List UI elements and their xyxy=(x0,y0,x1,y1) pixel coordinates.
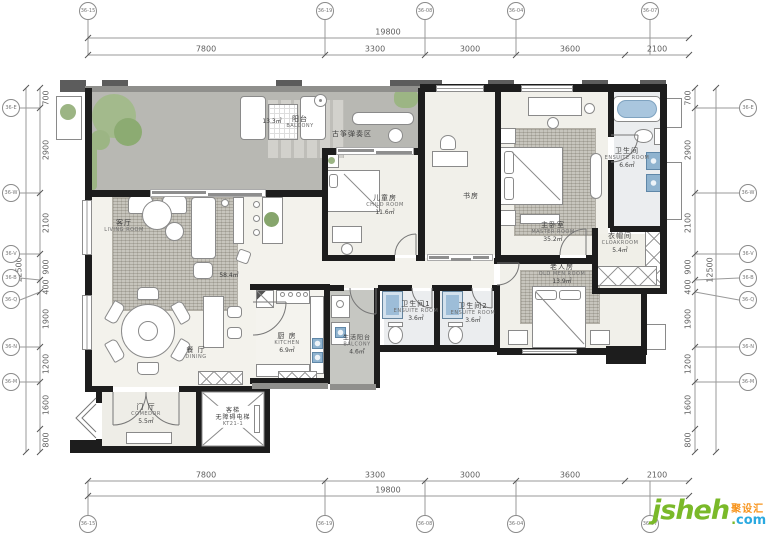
compass-dot xyxy=(319,99,322,102)
fridge xyxy=(256,290,274,308)
kitchen-sink xyxy=(312,338,323,349)
label-dining: 餐 厅DINING xyxy=(185,346,206,360)
wall-child-bottom-a xyxy=(322,255,395,261)
dim-top-seg: 2100 xyxy=(647,45,667,54)
dim-right-seg: 1900 xyxy=(684,309,693,329)
window-top-study xyxy=(436,85,484,92)
toilet xyxy=(634,129,653,143)
dim-left-seg: 400 xyxy=(42,279,51,294)
dim-bottom-seg: 3600 xyxy=(560,471,580,480)
plant-icon xyxy=(114,118,142,146)
label-child: 儿童房CHILD ROOM11.6㎡ xyxy=(366,194,404,216)
dim-bottom-total: 19800 xyxy=(375,486,400,495)
ac-platform xyxy=(646,324,666,350)
guzheng-stool xyxy=(388,128,403,143)
wall-service-right xyxy=(374,288,380,388)
grid-bubble: 36-19 xyxy=(316,2,334,20)
burner xyxy=(303,292,308,297)
dim-left-seg: 700 xyxy=(42,90,51,105)
sliding-door-leaf xyxy=(473,256,489,259)
dim-right-seg: 400 xyxy=(684,279,693,294)
wall-master-bath-b xyxy=(608,160,614,228)
burner xyxy=(280,292,285,297)
label-elevator: 客梯无障碍电梯KT21-1 xyxy=(213,406,252,428)
sliding-door-leaf xyxy=(208,193,262,196)
wall-study-left xyxy=(418,88,425,258)
dim-bottom-seg: 3000 xyxy=(460,471,480,480)
guzheng-table xyxy=(352,112,414,125)
label-balcony: 阳台BALCONY xyxy=(286,115,313,129)
grid-bubble: 36-15 xyxy=(79,515,97,533)
label-guzheng-zone: 古筝弹奏区 xyxy=(332,130,372,138)
wall-left-a xyxy=(85,88,92,202)
grid-bubble: 36-M xyxy=(2,373,20,391)
wall-baths-top-a xyxy=(378,285,412,291)
grid-bubble: 36-V xyxy=(739,245,757,263)
dining-table-center xyxy=(138,321,158,341)
desk xyxy=(332,226,362,243)
island-plant-icon xyxy=(264,212,279,227)
wall-elevator-right xyxy=(264,388,270,448)
wall-balcony-railing xyxy=(85,86,422,92)
dresser xyxy=(528,97,582,116)
dim-right-seg: 1600 xyxy=(684,395,693,415)
floor-plan-canvas: 13.3㎡ 阳台BALCONY 古筝弹奏区 客厅LIVING ROOM 58.4… xyxy=(0,0,780,537)
logo-brand: jsheh xyxy=(652,497,729,525)
wall-right xyxy=(660,88,667,294)
grid-bubble: 36-N xyxy=(2,338,20,356)
grid-bubble: 36-04 xyxy=(507,515,525,533)
plant-icon xyxy=(60,104,76,120)
dining-chair xyxy=(137,362,159,375)
dim-bottom-seg: 2100 xyxy=(647,471,667,480)
dim-left-seg: 2900 xyxy=(42,140,51,160)
grid-bubble: 36-E xyxy=(739,99,757,117)
sink-drain xyxy=(336,300,344,308)
rail-kitchen-bottom xyxy=(252,383,328,389)
label-balcony-area: 13.3㎡ xyxy=(262,117,281,125)
pillow xyxy=(329,174,338,188)
wall-foyer-left-a xyxy=(96,390,102,403)
dim-right-seg: 800 xyxy=(684,432,693,447)
grid-bubble: 36-15 xyxy=(79,2,97,20)
sideboard xyxy=(203,296,224,348)
dim-right-seg: 900 xyxy=(684,259,693,274)
nightstand xyxy=(508,330,528,345)
wall-study-master xyxy=(495,92,501,258)
dim-right-seg: 700 xyxy=(684,90,693,105)
side-chair xyxy=(227,306,242,318)
grid-bubble: 36-B xyxy=(2,269,20,287)
label-master-bath: 卫生间ENSUITE ROOM6.6㎡ xyxy=(605,147,650,169)
dresser-stool xyxy=(547,117,559,129)
bay-window-seat xyxy=(590,153,602,199)
bathtub-basin xyxy=(617,100,657,118)
grid-bubble: 36-08 xyxy=(416,2,434,20)
dim-left-seg: 1900 xyxy=(42,309,51,329)
burner xyxy=(296,292,301,297)
dim-bottom-seg: 7800 xyxy=(196,471,216,480)
grid-bubble: 36-08 xyxy=(416,515,434,533)
ac-platform xyxy=(666,162,682,220)
grid-bubble: 36-W xyxy=(739,184,757,202)
desk-chair xyxy=(341,243,353,255)
jsheh-watermark-logo: jsheh 聚设汇 .com xyxy=(652,497,766,527)
pillow xyxy=(504,151,514,174)
burner xyxy=(288,292,293,297)
bar-stool xyxy=(253,215,260,222)
wall-elder-right xyxy=(641,294,647,352)
corner-block-entry xyxy=(70,440,98,453)
window-left-2 xyxy=(82,295,92,350)
window-top-master xyxy=(521,85,573,92)
sliding-door-leaf xyxy=(338,149,374,152)
rail-service-bottom xyxy=(330,384,376,390)
dim-right-seg: 2900 xyxy=(684,140,693,160)
sliding-door-leaf xyxy=(376,151,412,154)
logo-tld: .com xyxy=(731,515,766,527)
dim-top-seg: 7800 xyxy=(196,45,216,54)
wall-left-b xyxy=(85,253,92,297)
nightstand xyxy=(590,330,610,345)
dim-left-seg: 2100 xyxy=(42,213,51,233)
dim-left-seg: 1600 xyxy=(42,395,51,415)
study-chair xyxy=(440,135,456,150)
dim-bottom-seg: 3300 xyxy=(365,471,385,480)
sliding-door-leaf xyxy=(451,258,471,261)
wall-child-left xyxy=(322,148,328,261)
grid-bubble: 36-04 xyxy=(507,2,525,20)
floor-corridor xyxy=(322,258,494,288)
grid-bubble: 36-Q xyxy=(2,291,20,309)
label-bath2: 卫生间2ENSUITE ROOM3.6㎡ xyxy=(451,302,496,324)
dim-left-seg: 900 xyxy=(42,259,51,274)
tv-console xyxy=(233,197,244,244)
wall-elevator-left xyxy=(196,388,202,448)
plant-icon xyxy=(328,157,335,164)
label-living: 客厅LIVING ROOM xyxy=(104,219,144,233)
ac-platform xyxy=(666,98,682,128)
chaise-chair xyxy=(193,262,213,279)
dim-right-seg: 1200 xyxy=(684,354,693,374)
pillow xyxy=(559,290,581,300)
wall-kitchen-right xyxy=(324,284,330,384)
grid-bubble: 36-E xyxy=(2,99,20,117)
grid-bubble: 36-B xyxy=(739,269,757,287)
kitchen-sink xyxy=(312,352,323,363)
dining-chair xyxy=(137,287,159,300)
label-foyer: 门 厅COMEDOR5.5㎡ xyxy=(131,403,161,425)
dim-top-seg: 3600 xyxy=(560,45,580,54)
floor-study xyxy=(425,92,495,255)
toilet xyxy=(448,326,463,344)
window-elder-bottom xyxy=(522,349,577,354)
wall-left-c xyxy=(85,348,92,392)
grid-bubble: 36-Q xyxy=(739,291,757,309)
bar-stool xyxy=(253,229,260,236)
coffee-table-small xyxy=(165,222,184,241)
toilet xyxy=(388,326,403,344)
wall-cloak-bottom xyxy=(592,288,667,294)
dim-left-seg: 1200 xyxy=(42,354,51,374)
label-service-balcony: 生活阳台BALCONY4.6㎡ xyxy=(343,335,371,356)
label-study: 书房 xyxy=(463,192,479,200)
sofa xyxy=(191,197,216,259)
floor-lamp xyxy=(221,199,229,207)
label-elder: 老人房OLD MEN ROOM13.9㎡ xyxy=(539,263,586,285)
window-left-1 xyxy=(82,200,92,255)
mirror xyxy=(584,103,595,114)
label-master: 主卧室MASTER ROOM35.2㎡ xyxy=(531,221,574,243)
doormat xyxy=(126,432,172,444)
column xyxy=(60,80,86,92)
shoe-cabinet xyxy=(198,371,243,385)
label-kitchen: 厨 房KITCHEN6.9㎡ xyxy=(274,332,299,354)
wardrobe xyxy=(597,266,657,286)
dim-right-total: 12500 xyxy=(706,257,715,282)
grid-bubble: 36-N xyxy=(739,338,757,356)
dim-right-seg: 2100 xyxy=(684,213,693,233)
dim-left-seg: 800 xyxy=(42,432,51,447)
pillow xyxy=(504,177,514,200)
side-chair xyxy=(227,327,242,339)
grid-bubble: 36-V xyxy=(2,245,20,263)
grid-bubble: 36-M xyxy=(739,373,757,391)
dim-top-seg: 3000 xyxy=(460,45,480,54)
label-bath1: 卫生间1ENSUITE ROOM3.6㎡ xyxy=(394,300,439,322)
wall-elder-left-a xyxy=(494,258,500,264)
bathroom-sink xyxy=(646,174,661,192)
wall-master-bath-a xyxy=(608,88,614,137)
wall-cloak-left xyxy=(592,228,598,290)
label-open-area: 58.4㎡ xyxy=(219,271,238,279)
sliding-door-leaf xyxy=(152,191,206,194)
grid-bubble: 36-07 xyxy=(641,2,659,20)
grid-bubble: 36-19 xyxy=(316,515,334,533)
living-carpet xyxy=(112,197,238,311)
wall-kitchen-top xyxy=(250,284,330,290)
wall-foyer-bottom xyxy=(96,446,270,453)
grid-bubble: 36-W xyxy=(2,184,20,202)
block-elder-corner xyxy=(606,346,646,364)
study-desk xyxy=(432,151,468,167)
label-cloakroom: 衣帽间CLOAKROOM5.4㎡ xyxy=(602,232,639,254)
elevator-slot xyxy=(254,405,260,433)
dim-top-seg: 3300 xyxy=(365,45,385,54)
pillow xyxy=(535,290,557,300)
sliding-door-leaf xyxy=(429,256,449,259)
bar-stool xyxy=(253,201,260,208)
dim-top-total: 19800 xyxy=(375,28,400,37)
